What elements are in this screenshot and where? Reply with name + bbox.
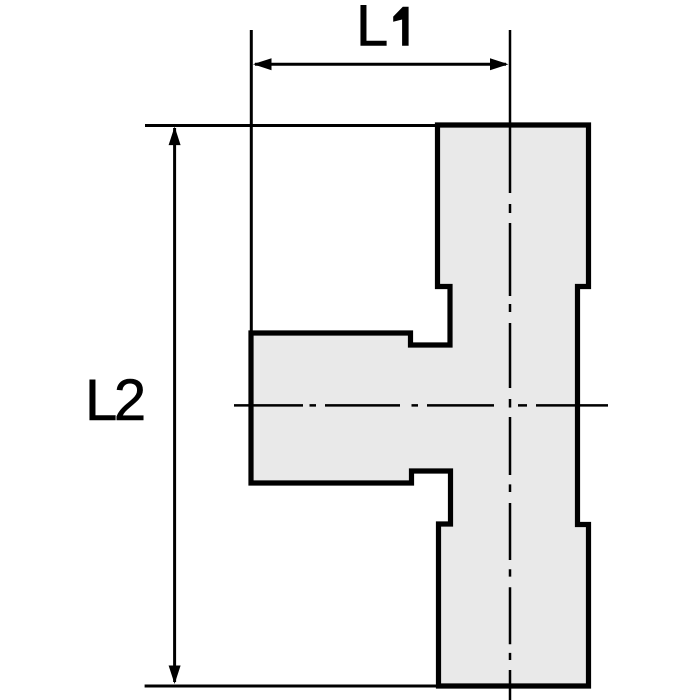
svg-text:L: L [85,368,117,433]
svg-text:2: 2 [114,368,146,433]
svg-text:L: L [356,0,388,59]
